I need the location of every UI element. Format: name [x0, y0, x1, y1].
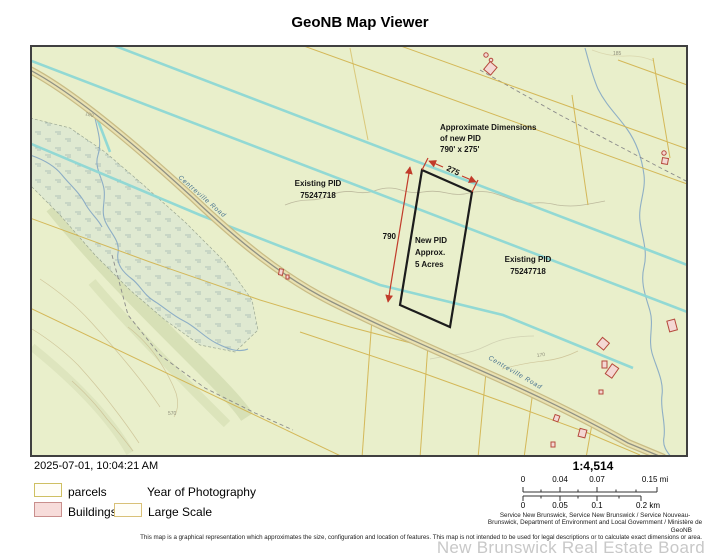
approx-dims-line1: Approximate Dimensions: [440, 123, 537, 132]
scale-mi-0: 0: [521, 475, 525, 484]
geonb-credit: GeoNB: [671, 527, 692, 534]
attribution-line2: Brunswick, Department of Environment and…: [487, 519, 703, 526]
contour-label-185: 185: [613, 51, 622, 57]
export-timestamp: 2025-07-01, 10:04:21 AM: [34, 460, 158, 472]
legend-swatch-parcels: [34, 483, 62, 497]
existing-pid-right-line1: Existing PID: [505, 255, 552, 264]
contour-label-170: 170: [536, 352, 545, 359]
legend-label-buildings: Buildings: [68, 505, 117, 519]
dimension-790-label: 790: [383, 232, 397, 241]
legend-label-year-of-photography: Year of Photography: [147, 485, 256, 499]
contour-label-570: 570: [168, 411, 177, 417]
legend-swatch-buildings: [34, 502, 62, 517]
map-frame: Centreville Road Centreville Road 790 27…: [30, 45, 688, 457]
approx-dims-line2: of new PID: [440, 134, 481, 143]
legend-label-parcels: parcels: [68, 485, 107, 499]
existing-pid-right-line2: 75247718: [510, 267, 546, 276]
attribution-line1: Service New Brunswick, Service New Bruns…: [487, 512, 703, 519]
new-pid-line2: Approx.: [415, 248, 445, 257]
scale-mi-2: 0.07: [589, 475, 605, 484]
page-title: GeoNB Map Viewer: [0, 14, 720, 31]
print-page: GeoNB Map Viewer: [0, 0, 720, 556]
legend-label-large-scale: Large Scale: [148, 505, 212, 519]
scale-mi-3: 0.15 mi: [642, 475, 668, 484]
scale-ratio: 1:4,514: [518, 459, 668, 473]
approx-dims-line3: 790' x 275': [440, 145, 479, 154]
new-pid-line1: New PID: [415, 236, 447, 245]
scale-miles-labels: 0 0.04 0.07 0.15 mi: [518, 475, 678, 485]
existing-pid-left-line1: Existing PID: [295, 179, 342, 188]
scale-km-labels: 0 0.05 0.1 0.2 km: [518, 501, 678, 511]
watermark: New Brunswick Real Estate Board: [437, 538, 705, 556]
existing-pid-left-line2: 75247718: [300, 191, 336, 200]
scale-km-2: 0.1: [591, 501, 602, 510]
scale-mi-1: 0.04: [552, 475, 568, 484]
scale-km-3: 0.2 km: [636, 501, 660, 510]
scale-km-1: 0.05: [552, 501, 568, 510]
scale-km-0: 0: [521, 501, 525, 510]
map-canvas[interactable]: Centreville Road Centreville Road 790 27…: [32, 47, 686, 455]
attribution: Service New Brunswick, Service New Bruns…: [487, 512, 703, 527]
scale-bar-miles: [518, 486, 678, 494]
legend-swatch-large-scale: [114, 503, 142, 517]
new-pid-line3: 5 Acres: [415, 260, 444, 269]
